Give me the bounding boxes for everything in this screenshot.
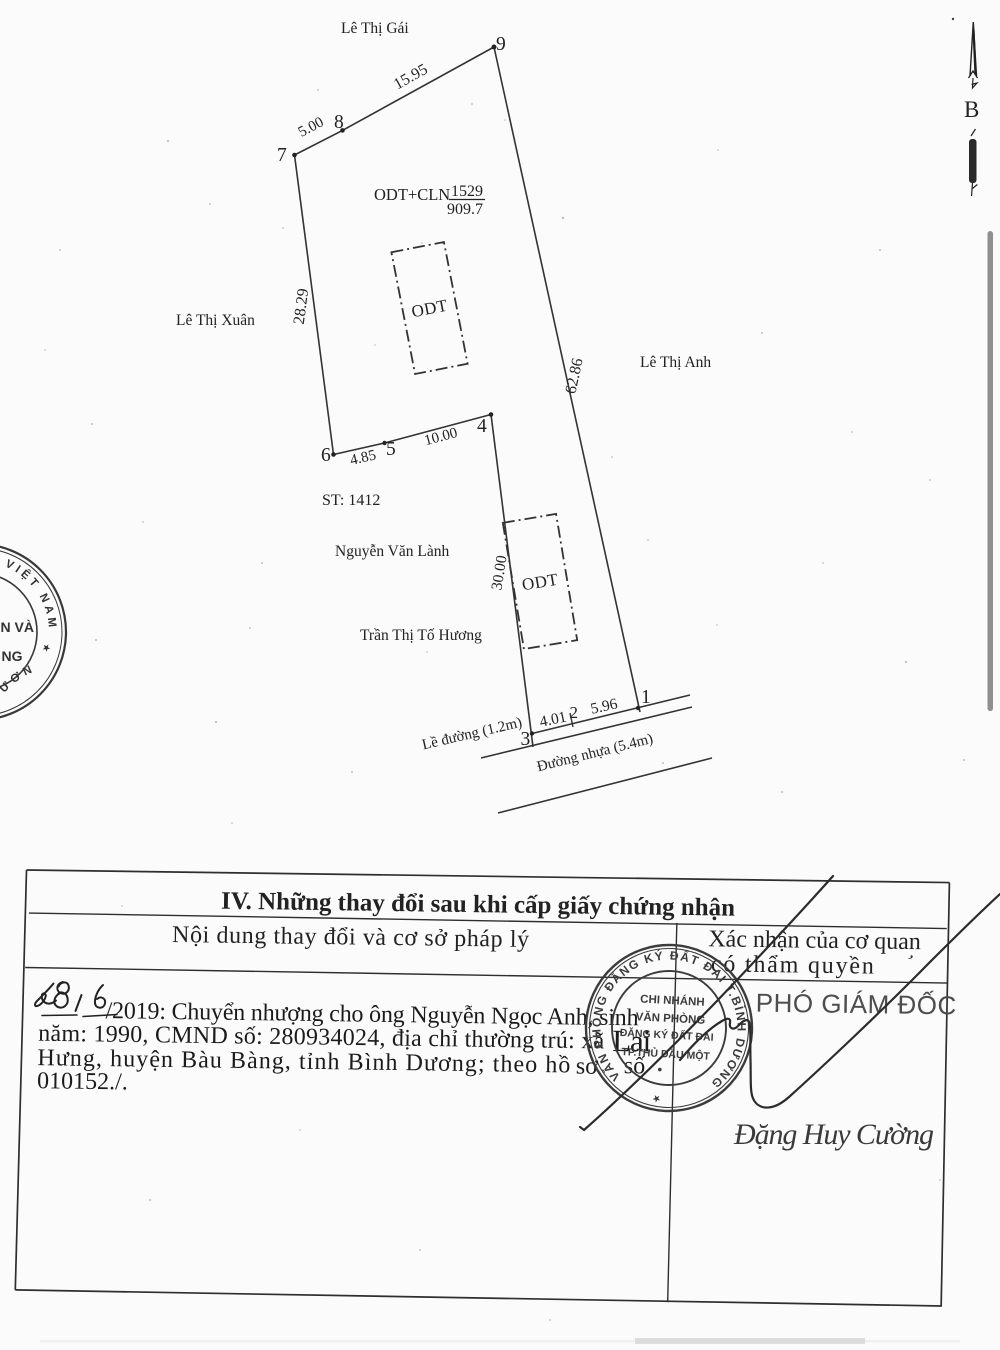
svg-text:909.7: 909.7 xyxy=(447,201,483,218)
svg-text:ST: 1412: ST: 1412 xyxy=(322,492,380,509)
svg-text:Trần Thị Tố Hương: Trần Thị Tố Hương xyxy=(360,627,482,644)
svg-text:NG: NG xyxy=(2,648,23,664)
svg-text:6: 6 xyxy=(321,445,331,466)
svg-text:1: 1 xyxy=(641,687,651,708)
svg-text:4: 4 xyxy=(477,416,487,437)
svg-text:5: 5 xyxy=(386,439,396,460)
svg-text:có thẩm quyền: có thẩm quyền xyxy=(711,951,876,979)
svg-text:7: 7 xyxy=(277,145,287,166)
svg-text:8: 8 xyxy=(334,112,344,133)
svg-text:★: ★ xyxy=(651,1092,662,1104)
svg-text:Nguyễn Văn Lành: Nguyễn Văn Lành xyxy=(335,543,449,560)
svg-text:1529: 1529 xyxy=(451,183,483,200)
svg-text:N VÀ: N VÀ xyxy=(1,619,34,635)
svg-text:Nội dung thay đổi và cơ sở phá: Nội dung thay đổi và cơ sở pháp lý xyxy=(172,922,529,953)
svg-text:2: 2 xyxy=(570,703,579,722)
svg-text:Lê Thị Xuân: Lê Thị Xuân xyxy=(176,312,255,329)
svg-text:Lê Thị Gái: Lê Thị Gái xyxy=(341,20,409,37)
svg-text:9: 9 xyxy=(496,34,506,55)
svg-text:Lê Thị Anh: Lê Thị Anh xyxy=(640,354,711,371)
svg-text:B: B xyxy=(964,97,979,122)
svg-text:PHÓ GIÁM ĐỐC: PHÓ GIÁM ĐỐC xyxy=(756,988,957,1021)
svg-text:3: 3 xyxy=(521,729,531,750)
svg-text:010152./.: 010152./. xyxy=(37,1068,128,1095)
svg-text:Đặng Huy Cường: Đặng Huy Cường xyxy=(733,1118,934,1151)
svg-text:ODT+CLN: ODT+CLN xyxy=(374,185,450,204)
